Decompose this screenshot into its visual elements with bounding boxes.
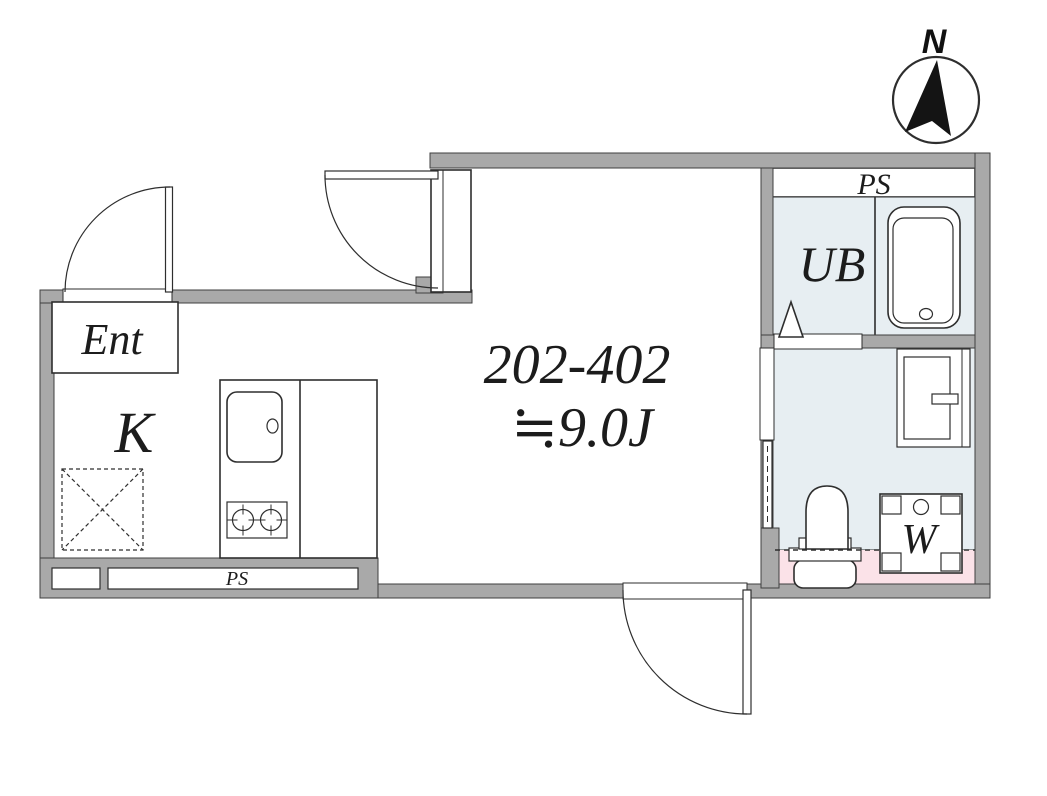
refrigerator-space [62, 469, 143, 550]
floor-plan-canvas: N PS UB Ent K 202-402 ≒9.0J W PS [0, 0, 1047, 796]
floor-plan: N PS UB Ent K 202-402 ≒9.0J W PS [0, 0, 1047, 796]
balcony-opening [623, 583, 747, 599]
sliding-door-panel [763, 441, 772, 528]
kitchen-counter [220, 380, 377, 558]
toilet-tank [794, 560, 856, 588]
ps-duct-small [52, 568, 100, 589]
faucet [267, 419, 278, 433]
vanity-handle [932, 394, 958, 404]
toilet-bowl [806, 486, 848, 549]
vanity-unit [897, 349, 970, 447]
balcony-door [623, 590, 751, 714]
unit-bath-label: UB [799, 236, 866, 292]
washer-label: W [902, 517, 941, 563]
openings [63, 170, 862, 599]
kitchen-label: K [114, 400, 157, 465]
north-label: N [922, 23, 948, 61]
washer-foot-tr [941, 496, 960, 514]
north-compass: N [893, 23, 979, 143]
entrance-door-arc [65, 187, 170, 292]
doorway-frame-box [431, 170, 471, 292]
main-room-door-leaf [325, 171, 438, 179]
main-room-door-arc [325, 175, 438, 288]
wall-east-outer [975, 153, 990, 598]
washer-foot-br [941, 553, 960, 571]
ps-top-label: PS [856, 168, 890, 201]
wall-east-partition-lower [761, 528, 779, 588]
main-room-door [325, 171, 438, 288]
ps-ducts [52, 568, 358, 589]
sliding-door-leaf [763, 441, 772, 528]
entrance-door-leaf [166, 187, 173, 292]
washer-foot-tl [882, 496, 901, 514]
bathtub-drain [920, 309, 933, 320]
unit-range-label: 202-402 [484, 334, 671, 396]
sliding-door-opening [760, 348, 774, 440]
main-doorway-frame [431, 170, 471, 292]
entrance-door [65, 187, 173, 292]
compass-needle [905, 60, 951, 136]
washer-foot-bl [882, 553, 901, 571]
entrance-label: Ent [80, 315, 144, 364]
balcony-door-leaf [743, 590, 751, 714]
ps-bottom-label: PS [225, 568, 248, 590]
balcony-door-arc [623, 590, 747, 714]
area-label: ≒9.0J [511, 397, 656, 459]
washer-hose-circle [914, 500, 929, 515]
wall-north-main [430, 153, 990, 168]
bathtub [888, 207, 960, 328]
